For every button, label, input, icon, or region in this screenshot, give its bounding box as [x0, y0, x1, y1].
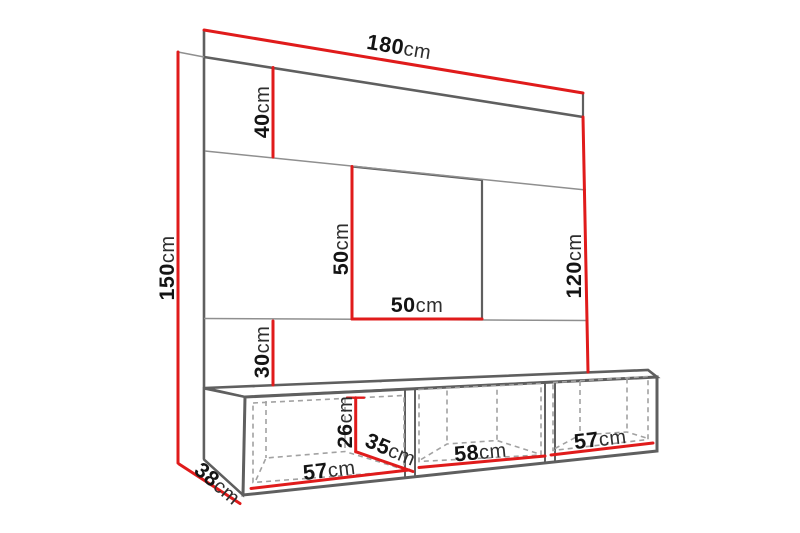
shelf-line-upper [205, 151, 586, 190]
label-cabinet-inner-height: 26cm [333, 396, 357, 449]
label-right-panel-height: 120cm [562, 233, 586, 298]
furniture-dimension-diagram: 180cm 150cm 40cm 50cm 50cm 120cm 30cm 26… [0, 0, 800, 533]
panel-thin-lines [178, 52, 588, 321]
diagram-canvas: 180cm 150cm 40cm 50cm 50cm 120cm 30cm 26… [0, 0, 800, 533]
label-compartment-middle: 58cm [453, 438, 508, 467]
extension-line-top-left [178, 52, 204, 57]
label-top-shelf-height: 40cm [250, 86, 274, 139]
label-bottom-shelf-height: 30cm [250, 326, 274, 379]
label-height-total: 150cm [155, 235, 179, 300]
label-niche-width: 50cm [391, 293, 444, 317]
label-niche-height: 50cm [329, 223, 353, 276]
